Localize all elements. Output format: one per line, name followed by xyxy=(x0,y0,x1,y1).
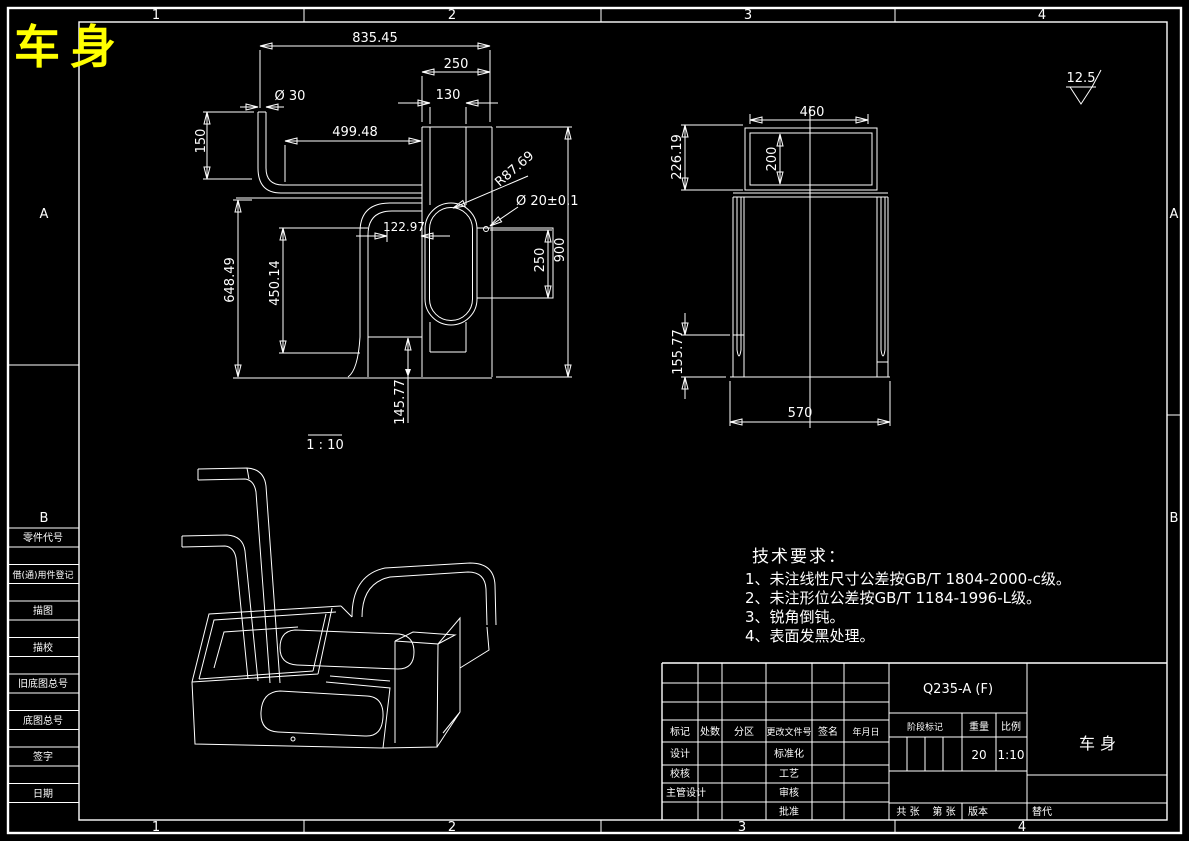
zone-label: A xyxy=(40,207,49,222)
dim-col-width: 250 xyxy=(444,57,469,72)
dim-plate-height: 450.14 xyxy=(268,260,283,306)
ext-lines-150 xyxy=(203,112,254,179)
tech-req-title: 技术要求： xyxy=(752,547,847,567)
dim-slot-radius: R87.69 xyxy=(492,148,537,190)
roughness-value: 12.5 xyxy=(1067,71,1096,86)
sheet-title: 车身 xyxy=(14,20,126,74)
tech-requirements: 技术要求： 1、未注线性尺寸公差按GB/T 1804-2000-c级。 2、未注… xyxy=(745,547,1071,645)
ext-lines-226 xyxy=(681,125,743,190)
tb-role-check: 校核 xyxy=(670,767,690,780)
outer-border xyxy=(8,8,1181,833)
tb-header-docno: 更改文件号 xyxy=(766,726,811,738)
dim-foot-height: 145.77 xyxy=(393,379,408,425)
margin-cell-label: 描图 xyxy=(33,604,53,617)
slot-outer xyxy=(425,203,477,325)
tube-inner-edge xyxy=(266,112,422,185)
body-edges xyxy=(330,606,390,681)
cad-viewport[interactable]: 1 2 3 4 1 2 3 4 A B A B 零件代号 借(通)用件登记 描图… xyxy=(0,0,1189,841)
tb-role-design: 设计 xyxy=(670,747,690,760)
tb-material: Q235-A (F) xyxy=(923,682,993,697)
seat-cushion xyxy=(280,630,414,669)
tb-scale-value: 1:10 xyxy=(998,748,1025,762)
tb-role-audit: 审核 xyxy=(779,786,799,799)
left-leg xyxy=(733,197,744,377)
front-slot-oval xyxy=(261,691,383,736)
dim-inner-width: 130 xyxy=(436,88,461,103)
leader-hole xyxy=(490,207,518,226)
zone-label: 3 xyxy=(744,8,752,23)
ext-lines-155 xyxy=(681,335,730,377)
tb-role-process: 工艺 xyxy=(779,768,799,780)
column-outline xyxy=(422,127,492,377)
dim-offset: 122.97 xyxy=(383,220,425,234)
tb-version-label: 版本 xyxy=(968,805,988,818)
mid-plate-foot-arc xyxy=(348,337,360,377)
right-box-front xyxy=(383,641,438,748)
dim-arrow-145 xyxy=(405,369,411,377)
zone-ticks-bottom xyxy=(304,820,895,833)
tb-weight-value: 20 xyxy=(971,748,986,762)
margin-cell-label: 底图总号 xyxy=(23,714,63,727)
zone-label: 4 xyxy=(1018,820,1026,835)
tb-hlines-left xyxy=(662,683,889,802)
dim-foot-height-side: 155.77 xyxy=(671,329,686,375)
tb-part-name: 车身 xyxy=(1079,734,1121,753)
dim-tube-dia: Ø 30 xyxy=(275,89,306,104)
dim-tray-depth: 200 xyxy=(765,147,780,172)
tb-header-mark: 标记 xyxy=(670,726,690,738)
dim-tray-height: 226.19 xyxy=(670,134,685,180)
tb-header-date: 年月日 xyxy=(852,726,879,738)
isometric-view[interactable] xyxy=(182,468,496,748)
seatback-end xyxy=(460,627,489,668)
surface-roughness-symbol: 12.5 xyxy=(1066,70,1101,104)
zone-label: 1 xyxy=(152,8,160,23)
margin-cell-label: 零件代号 xyxy=(23,532,63,544)
right-leg xyxy=(877,197,888,377)
tech-req-item: 1、未注线性尺寸公差按GB/T 1804-2000-c级。 xyxy=(745,570,1071,588)
tb-role-approve: 批准 xyxy=(779,805,799,818)
zone-label: B xyxy=(40,511,49,526)
tech-req-item: 3、锐角倒钝。 xyxy=(745,608,845,626)
seatback-inner xyxy=(362,572,487,625)
zone-label: A xyxy=(1170,207,1179,222)
tb-scale-label: 比例 xyxy=(1001,720,1021,733)
dim-tray-width: 460 xyxy=(800,105,825,120)
tb-weight-label: 重量 xyxy=(969,720,989,733)
side-view[interactable]: 460 200 226.19 155.77 570 xyxy=(670,105,890,428)
dim-hole-dia: Ø 20±0.1 xyxy=(516,194,578,209)
tb-stage-label: 阶段标记 xyxy=(907,721,943,733)
zone-label: 4 xyxy=(1038,8,1046,23)
tech-req-item: 4、表面发黑处理。 xyxy=(745,627,875,645)
ext-lines-130 xyxy=(430,107,466,124)
handle2-outer xyxy=(182,535,258,681)
margin-cell-label: 签字 xyxy=(33,750,53,763)
handle1-inner xyxy=(198,479,270,683)
zone-label: 2 xyxy=(448,8,456,23)
dim-tube-drop: 150 xyxy=(194,129,209,154)
margin-cell-label: 描校 xyxy=(33,641,53,654)
hole-20 xyxy=(484,227,489,232)
handle1-seam xyxy=(247,468,249,479)
zone-label: 2 xyxy=(448,820,456,835)
tb-header-zone: 分区 xyxy=(734,726,754,738)
dim-body-height: 648.49 xyxy=(223,257,238,303)
zone-ticks-top xyxy=(304,8,895,22)
tb-sheet-total: 共 张 xyxy=(896,806,919,818)
right-face xyxy=(437,618,460,747)
zone-label: B xyxy=(1170,511,1179,526)
drawing-canvas[interactable]: 1 2 3 4 1 2 3 4 A B A B 零件代号 借(通)用件登记 描图… xyxy=(0,0,1189,841)
tb-header-sign: 签名 xyxy=(818,725,838,738)
tb-sheet-no: 第 张 xyxy=(932,805,955,818)
ext-lines-450 xyxy=(279,228,368,353)
tb-header-count: 处数 xyxy=(700,725,720,738)
left-margin-cells: 零件代号 借(通)用件登记 描图 描校 旧底图总号 底图总号 签字 日期 xyxy=(8,528,79,803)
dim-total-length: 835.45 xyxy=(352,31,398,46)
drawing-frame: 1 2 3 4 1 2 3 4 A B A B xyxy=(8,8,1181,835)
tb-replace-label: 替代 xyxy=(1032,805,1052,818)
view-scale-note: 1 : 10 xyxy=(306,438,343,453)
margin-cell-label: 日期 xyxy=(33,788,53,800)
margin-cell-label: 借(通)用件登记 xyxy=(12,569,73,581)
tb-role-chief: 主管设计 xyxy=(666,786,706,799)
dim-bracket-height: 250 xyxy=(533,248,548,273)
dim-tube-length: 499.48 xyxy=(332,125,378,140)
inner-border xyxy=(79,22,1167,820)
margin-cell-label: 旧底图总号 xyxy=(18,677,68,690)
tb-role-standard: 标准化 xyxy=(774,747,804,760)
iso-hole xyxy=(291,737,295,741)
zone-label: 1 xyxy=(152,820,160,835)
foot-box xyxy=(368,337,422,377)
title-block: 标记 处数 分区 更改文件号 签名 年月日 设计 标准化 校核 工艺 主管设计 … xyxy=(662,663,1167,820)
slot-inner xyxy=(430,208,473,321)
dim-total-height: 900 xyxy=(553,238,568,263)
zone-label: 3 xyxy=(738,820,746,835)
dim-base-width: 570 xyxy=(788,406,813,421)
tech-req-item: 2、未注形位公差按GB/T 1184-1996-L级。 xyxy=(745,589,1041,607)
front-view[interactable]: 835.45 250 130 Ø 30 150 499.48 122.97 64… xyxy=(194,31,578,453)
